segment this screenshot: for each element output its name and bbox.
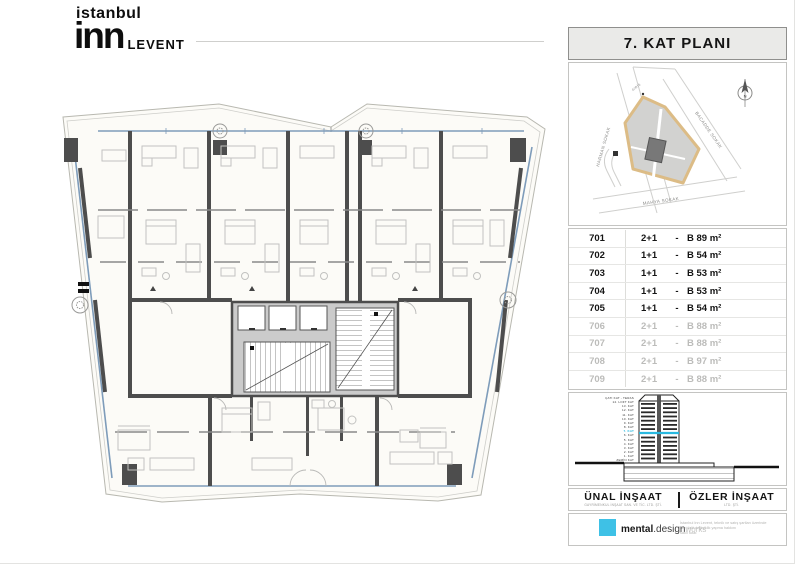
street-label: HARMAN SOKAK — [595, 126, 611, 167]
floor-label: ZEMİN KAT — [578, 458, 634, 462]
unit-detail: 2+1-B 88 m² — [625, 318, 786, 335]
page-title: 7. KAT PLANI — [568, 27, 787, 60]
companies-bar: ÜNAL İNŞAAT GAYRİMENKUL İNŞAAT SAN. VE T… — [568, 488, 787, 511]
unit-number: 702 — [569, 250, 625, 261]
unit-number: 706 — [569, 321, 625, 332]
unit-detail: 1+1-B 54 m² — [625, 248, 786, 265]
unit-number: 708 — [569, 356, 625, 367]
unit-number: 709 — [569, 374, 625, 385]
unit-number: 703 — [569, 268, 625, 279]
unit-detail: 2+1-B 88 m² — [625, 371, 786, 388]
company-ozler: ÖZLER İNŞAAT LTD. ŞTİ. — [678, 489, 787, 510]
street-label: BACADDE SOKAK — [694, 111, 723, 150]
floor-plan-drawing — [0, 0, 560, 570]
company-name: ÜNAL İNŞAAT — [569, 492, 678, 503]
unit-detail: 2+1-B 89 m² — [625, 230, 786, 247]
unit-row: 7012+1-B 89 m² — [569, 230, 786, 248]
sheet-border-right — [794, 0, 795, 564]
floor-label-list: ÇATI KAT - TERAS14. LOFT KAT13. KAT12. K… — [578, 396, 634, 463]
unit-number: 704 — [569, 286, 625, 297]
core — [232, 302, 398, 396]
companies-divider — [678, 492, 680, 508]
unit-row: 7041+1-B 53 m² — [569, 283, 786, 301]
site-map-drawing: N HARMAN SOKAK BACADDE SOKAK MAHYA SOKAK… — [569, 63, 786, 225]
unit-row: 7062+1-B 88 m² — [569, 318, 786, 336]
unit-row: 7051+1-B 54 m² — [569, 300, 786, 318]
compass-north-label: N — [744, 94, 747, 99]
unit-row: 7082+1-B 97 m² — [569, 353, 786, 371]
street-label: MAHYA SOKAK — [642, 196, 679, 206]
company-subtitle: GAYRİMENKUL İNŞAAT SAN. VE TİC. LTD. ŞTİ… — [569, 504, 678, 507]
unit-detail: 2+1-B 97 m² — [625, 353, 786, 370]
stair-icon — [244, 342, 330, 392]
site-map: N HARMAN SOKAK BACADDE SOKAK MAHYA SOKAK… — [568, 62, 787, 226]
unit-row: 7031+1-B 53 m² — [569, 265, 786, 283]
unit-number: 705 — [569, 303, 625, 314]
unit-detail: 1+1-B 53 m² — [625, 265, 786, 282]
unit-detail: 1+1-B 54 m² — [625, 300, 786, 317]
unit-row: 7021+1-B 54 m² — [569, 248, 786, 266]
company-name: ÖZLER İNŞAAT — [678, 492, 787, 503]
unit-number: 701 — [569, 233, 625, 244]
company-unal: ÜNAL İNŞAAT GAYRİMENKUL İNŞAAT SAN. VE T… — [569, 489, 678, 510]
unit-detail: 1+1-B 53 m² — [625, 283, 786, 300]
company-subtitle: LTD. ŞTİ. — [678, 504, 787, 507]
elevator-icon — [238, 306, 327, 330]
designer-bar: mental.designworks İstanbul Inn Levent, … — [568, 513, 787, 546]
unit-table: 7012+1-B 89 m²7021+1-B 54 m²7031+1-B 53 … — [568, 228, 787, 390]
disclaimer-text: İstanbul Inn Levent, teknik ve satış şar… — [680, 521, 780, 537]
unit-row: 7072+1-B 88 m² — [569, 336, 786, 354]
unit-number: 707 — [569, 338, 625, 349]
unit-row: 7092+1-B 88 m² — [569, 371, 786, 388]
brand-bold: mental — [621, 524, 653, 535]
compass-icon: N — [738, 79, 752, 107]
stair-icon — [336, 308, 394, 390]
designer-logo-icon — [599, 519, 616, 536]
unit-detail: 2+1-B 88 m² — [625, 336, 786, 353]
